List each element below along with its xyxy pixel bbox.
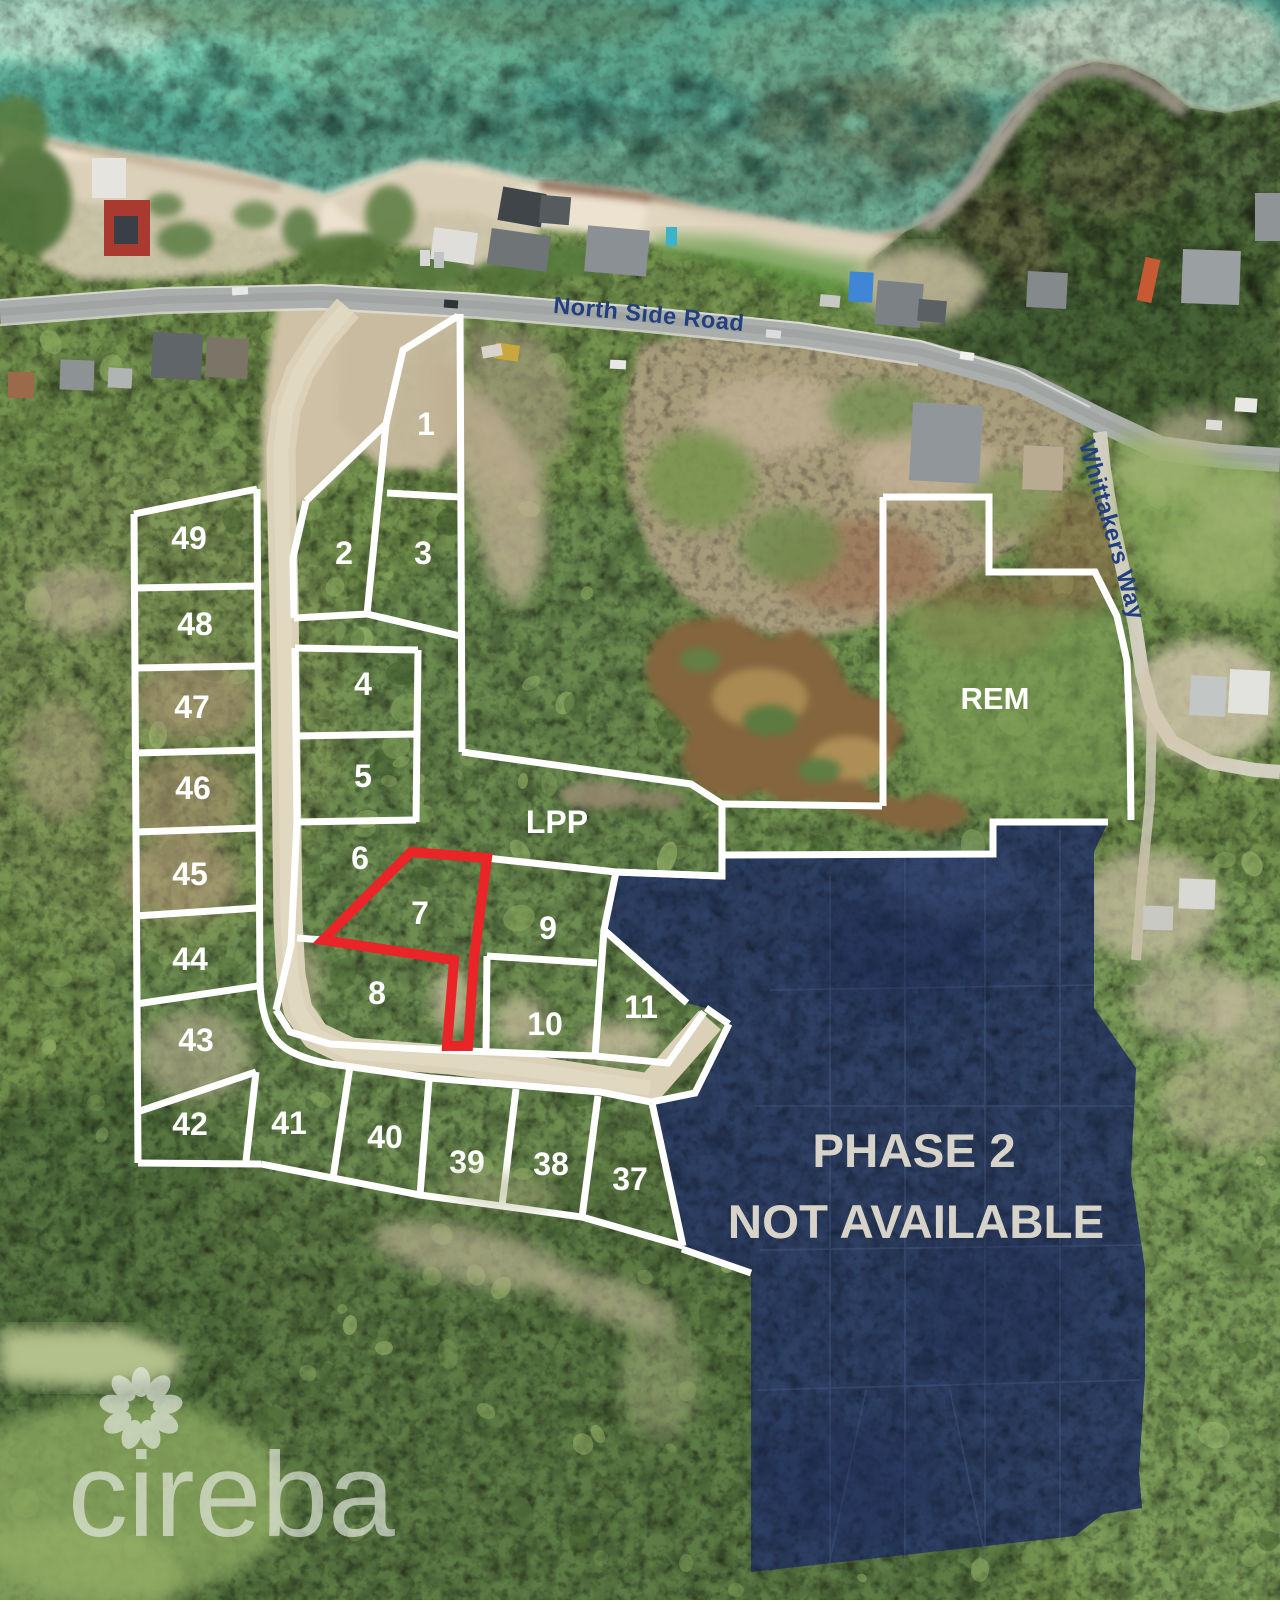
svg-text:11: 11 bbox=[624, 989, 658, 1025]
svg-text:7: 7 bbox=[411, 895, 429, 931]
svg-text:41: 41 bbox=[271, 1105, 307, 1141]
svg-text:2: 2 bbox=[335, 535, 353, 571]
svg-text:6: 6 bbox=[351, 840, 369, 876]
svg-text:46: 46 bbox=[175, 770, 211, 806]
svg-text:45: 45 bbox=[172, 856, 208, 892]
svg-text:4: 4 bbox=[354, 666, 372, 702]
svg-text:LPP: LPP bbox=[526, 804, 588, 840]
svg-text:1: 1 bbox=[417, 406, 435, 442]
svg-text:43: 43 bbox=[178, 1022, 214, 1058]
svg-text:10: 10 bbox=[527, 1006, 563, 1042]
svg-text:5: 5 bbox=[354, 758, 372, 794]
svg-text:REM: REM bbox=[961, 681, 1030, 716]
svg-text:9: 9 bbox=[539, 910, 557, 946]
svg-text:37: 37 bbox=[612, 1161, 648, 1197]
svg-text:NOT AVAILABLE: NOT AVAILABLE bbox=[728, 1196, 1104, 1249]
svg-text:42: 42 bbox=[172, 1106, 208, 1142]
svg-text:PHASE 2: PHASE 2 bbox=[812, 1125, 1015, 1178]
svg-text:38: 38 bbox=[533, 1146, 569, 1182]
svg-text:cireba: cireba bbox=[68, 1428, 395, 1562]
svg-text:8: 8 bbox=[368, 975, 386, 1011]
svg-text:49: 49 bbox=[171, 520, 207, 556]
svg-text:40: 40 bbox=[367, 1119, 403, 1155]
svg-text:3: 3 bbox=[414, 535, 432, 571]
svg-text:48: 48 bbox=[177, 606, 213, 642]
svg-text:47: 47 bbox=[174, 689, 210, 725]
svg-text:44: 44 bbox=[172, 941, 208, 977]
